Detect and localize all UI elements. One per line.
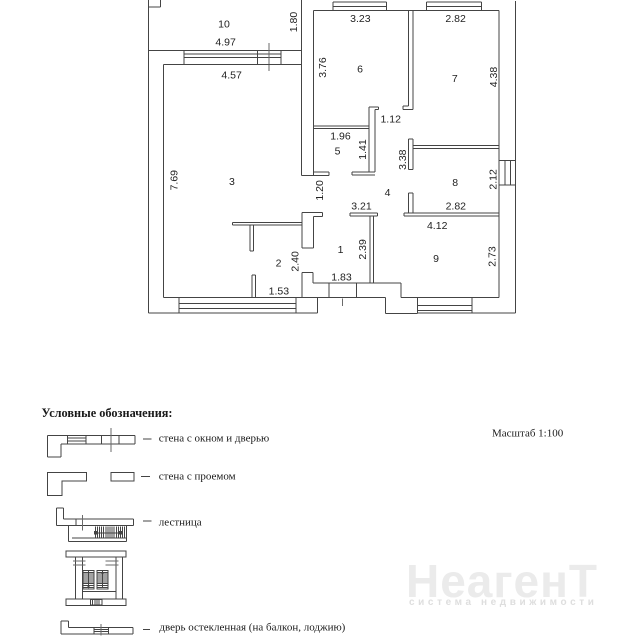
svg-text:3.21: 3.21 [351, 200, 372, 212]
svg-text:1.12: 1.12 [380, 113, 401, 125]
svg-text:стена с окном и дверью: стена с окном и дверью [159, 433, 269, 445]
svg-text:7: 7 [452, 73, 458, 85]
svg-text:1.96: 1.96 [330, 130, 351, 142]
svg-text:6: 6 [357, 64, 363, 76]
svg-text:2: 2 [276, 258, 282, 270]
svg-text:7.69: 7.69 [168, 170, 180, 191]
svg-text:3: 3 [229, 176, 235, 188]
svg-text:1.41: 1.41 [357, 139, 369, 160]
svg-text:4.12: 4.12 [427, 220, 448, 232]
svg-text:3.76: 3.76 [317, 57, 329, 78]
svg-text:3.38: 3.38 [397, 149, 409, 170]
svg-text:1.20: 1.20 [314, 180, 326, 201]
svg-text:2.82: 2.82 [445, 13, 466, 25]
svg-text:1.80: 1.80 [288, 12, 300, 33]
svg-text:1: 1 [338, 244, 344, 256]
svg-text:2.40: 2.40 [290, 251, 302, 272]
svg-text:10: 10 [218, 19, 230, 31]
svg-text:2.12: 2.12 [487, 169, 499, 190]
svg-text:3.23: 3.23 [350, 13, 371, 25]
svg-text:4.97: 4.97 [215, 36, 236, 48]
svg-text:2.82: 2.82 [446, 201, 467, 213]
svg-text:1.83: 1.83 [331, 272, 352, 284]
svg-text:Условные обозначения:: Условные обозначения: [42, 406, 173, 420]
svg-text:4.57: 4.57 [221, 69, 242, 81]
svg-text:2.73: 2.73 [486, 246, 498, 267]
svg-text:4: 4 [385, 187, 391, 199]
svg-text:9: 9 [433, 253, 439, 265]
svg-text:лестница: лестница [159, 517, 202, 529]
svg-text:5: 5 [335, 146, 341, 158]
svg-text:Масштаб 1:100: Масштаб 1:100 [492, 428, 564, 440]
svg-text:1.53: 1.53 [269, 285, 290, 297]
svg-text:4.38: 4.38 [488, 67, 500, 88]
svg-text:стена с проемом: стена с проемом [159, 470, 236, 482]
svg-text:8: 8 [452, 177, 458, 189]
svg-text:дверь остекленная (на балкон,: дверь остекленная (на балкон, лоджию) [159, 622, 345, 634]
svg-text:2.39: 2.39 [357, 239, 369, 260]
